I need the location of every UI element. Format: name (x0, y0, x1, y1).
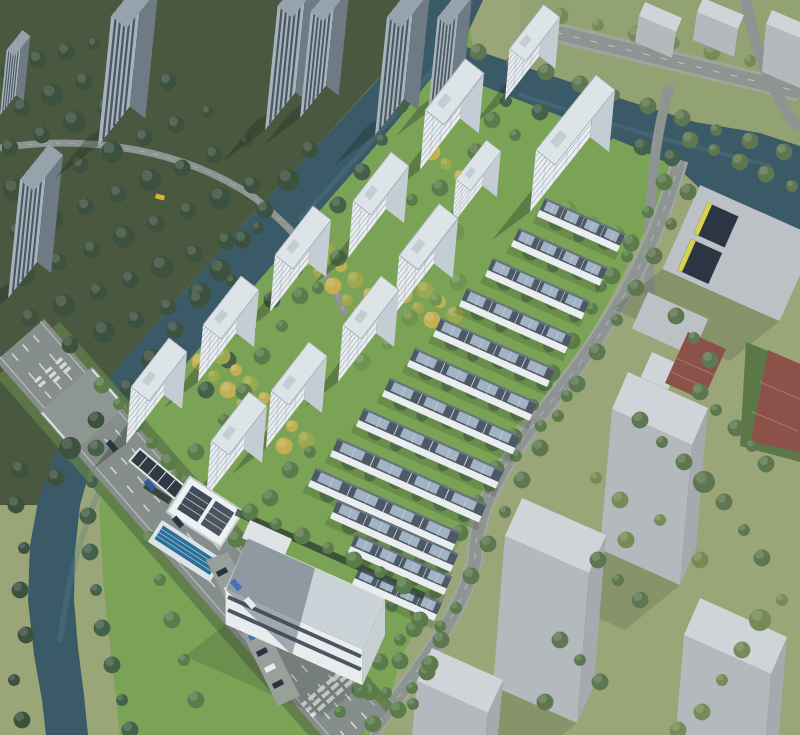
aerial-scene (0, 0, 800, 735)
rendering-canvas (0, 0, 800, 735)
